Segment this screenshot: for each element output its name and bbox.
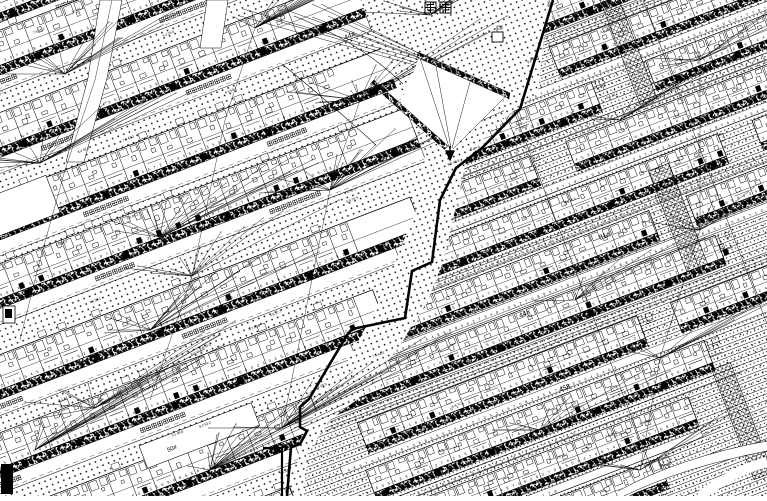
svg-text:5.8: 5.8	[470, 147, 475, 151]
svg-text:4.6: 4.6	[455, 72, 460, 76]
svg-text:60.12: 60.12	[520, 117, 529, 121]
